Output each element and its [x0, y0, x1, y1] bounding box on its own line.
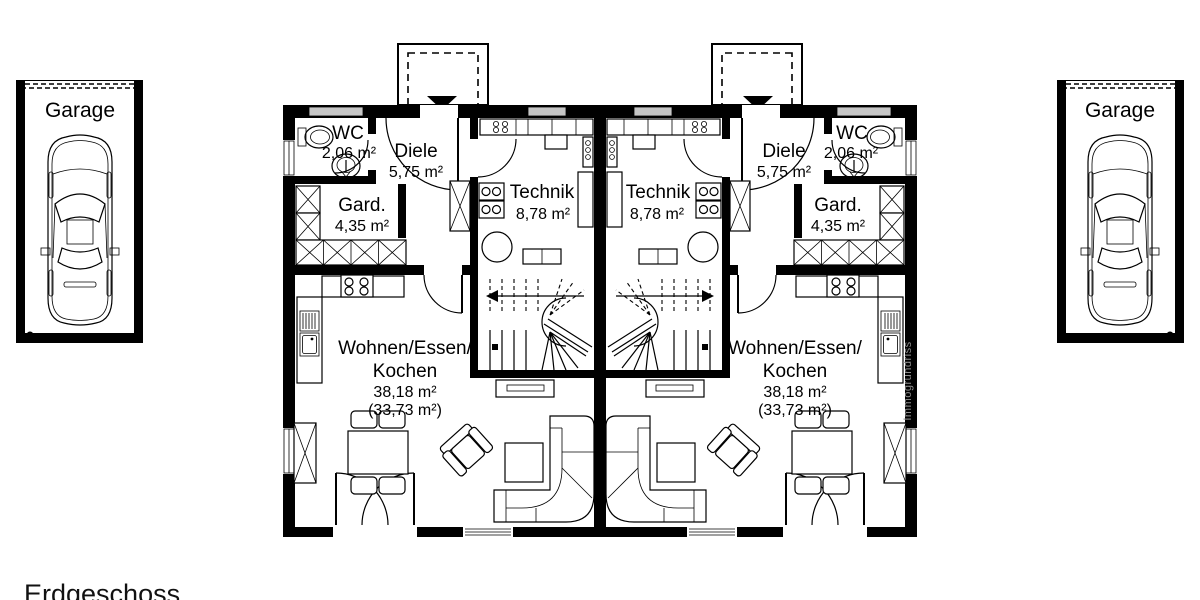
room-area-wohnen-right: 38,18 m²	[763, 384, 827, 401]
garage-label-left: Garage	[45, 99, 115, 122]
room-label-technik-right: Technik	[626, 182, 691, 203]
garage-label-right: Garage	[1085, 99, 1155, 122]
room-label-wohnen-left-2: Kochen	[373, 361, 437, 382]
room-label-wc-right: WC	[836, 123, 868, 144]
terrace-door-opening	[333, 527, 417, 537]
technik-door-swing	[478, 139, 516, 177]
room-label-gard-left: Gard.	[338, 195, 386, 216]
room-label-gard-right: Gard.	[814, 195, 862, 216]
chair-icon	[351, 477, 377, 494]
coffee-table	[505, 443, 543, 482]
room-area-wc-right: 2,06 m²	[824, 145, 879, 162]
diele-wardrobe	[450, 181, 470, 231]
floor-title: Erdgeschoss	[24, 579, 180, 600]
dining-table	[348, 431, 408, 474]
living-furniture	[294, 411, 594, 522]
window-top-technik	[528, 107, 566, 116]
armchair-icon	[437, 421, 494, 477]
watermark: Immogrundriss	[902, 341, 914, 420]
room-label-wohnen-right-2: Kochen	[763, 361, 827, 382]
staircase	[486, 279, 592, 370]
room-area-diele-right: 5,75 m²	[757, 164, 812, 181]
room-label-technik-left: Technik	[510, 182, 575, 203]
room-area-technik-right: 8,78 m²	[630, 206, 685, 223]
room-area-gard-left: 4,35 m²	[335, 218, 390, 235]
living-door-swing	[424, 275, 462, 313]
room-area2-wohnen-left: (33,73 m²)	[368, 402, 442, 419]
entrance-porch	[398, 44, 488, 110]
garage-corner-dot	[27, 332, 34, 339]
room-label-diele-right: Diele	[762, 141, 805, 162]
floorplan-canvas: Garage Garage WC 2,06 m² Diele 5,75 m² G…	[0, 0, 1200, 600]
room-label-wohnen-right-1: Wohnen/Essen/	[728, 338, 863, 359]
room-label-wc-left: WC	[332, 123, 364, 144]
entrance-opening	[420, 105, 458, 118]
room-area-gard-right: 4,35 m²	[811, 218, 866, 235]
window-top-wc	[309, 107, 363, 116]
room-area-wohnen-left: 38,18 m²	[373, 384, 437, 401]
sideboard	[496, 380, 554, 397]
room-area2-wohnen-right: (33,73 m²)	[758, 402, 832, 419]
room-area-diele-left: 5,75 m²	[389, 164, 444, 181]
room-label-wohnen-left-1: Wohnen/Essen/	[338, 338, 473, 359]
stair-direction-arrow	[486, 290, 498, 302]
boiler-icon	[482, 232, 512, 262]
chair-icon	[379, 477, 405, 494]
room-label-diele-left: Diele	[394, 141, 437, 162]
room-area-technik-left: 8,78 m²	[516, 206, 571, 223]
room-area-wc-left: 2,06 m²	[322, 145, 377, 162]
